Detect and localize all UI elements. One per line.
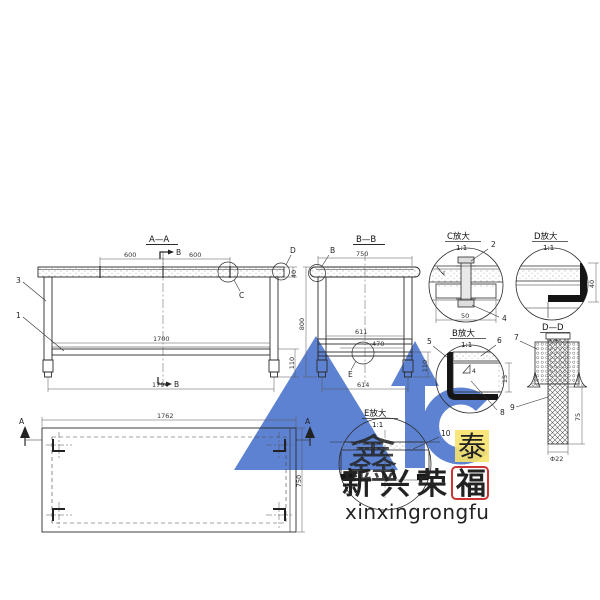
detail-d-title: D放大 xyxy=(534,231,558,242)
svg-text:B: B xyxy=(330,246,335,255)
svg-text:兴: 兴 xyxy=(380,467,410,502)
side-detail-circle-e: E xyxy=(348,342,374,379)
svg-text:40: 40 xyxy=(290,270,298,278)
section-dd: D—D 1:2 7 9 75 Φ22 xyxy=(510,323,587,463)
svg-text:1: 1 xyxy=(16,311,21,320)
svg-text:75: 75 xyxy=(574,413,582,421)
svg-text:5: 5 xyxy=(427,337,432,346)
svg-text:福: 福 xyxy=(455,467,486,502)
part-leader-1: 1 xyxy=(16,311,64,351)
weld-symbol: 4 xyxy=(463,365,476,375)
front-tabletop xyxy=(38,267,284,277)
svg-text:4: 4 xyxy=(472,368,476,375)
technical-drawing: 鑫 泰 A—A B xyxy=(0,0,600,600)
svg-text:A: A xyxy=(19,417,25,426)
svg-text:7: 7 xyxy=(514,333,519,342)
detail-d: D放大 1:1 40 xyxy=(514,231,599,320)
detail-d-circle xyxy=(516,248,588,320)
side-right-leg xyxy=(404,277,412,360)
front-shelf xyxy=(52,349,270,355)
svg-text:600: 600 xyxy=(124,251,136,259)
front-right-leg xyxy=(270,277,278,360)
svg-text:E: E xyxy=(348,370,353,379)
svg-text:荣: 荣 xyxy=(417,467,447,502)
svg-text:750: 750 xyxy=(356,250,368,258)
svg-text:611: 611 xyxy=(355,328,367,336)
svg-text:614: 614 xyxy=(357,381,369,389)
svg-text:470: 470 xyxy=(372,340,384,348)
detail-c-title: C放大 xyxy=(447,231,470,242)
watermark-text: 新 兴 荣 福 xinxingrongfu xyxy=(342,467,489,524)
svg-text:A: A xyxy=(305,417,311,426)
detail-b-title: B放大 xyxy=(452,328,475,339)
svg-text:B: B xyxy=(176,248,181,257)
svg-text:110: 110 xyxy=(288,357,296,369)
svg-text:3: 3 xyxy=(16,276,21,285)
svg-text:B: B xyxy=(174,380,179,389)
svg-text:600: 600 xyxy=(189,251,201,259)
svg-text:4: 4 xyxy=(502,314,507,323)
seal-right-char: 泰 xyxy=(458,430,486,463)
svg-text:1762: 1762 xyxy=(157,412,174,420)
svg-text:D: D xyxy=(290,246,296,255)
svg-text:新: 新 xyxy=(342,467,372,502)
svg-text:10: 10 xyxy=(441,429,451,438)
detail-d-dim: 40 xyxy=(588,263,599,302)
svg-text:C: C xyxy=(239,291,244,300)
svg-text:750: 750 xyxy=(295,475,303,487)
svg-text:40: 40 xyxy=(588,280,596,288)
brand-cn: 新 兴 荣 福 xyxy=(342,467,488,502)
svg-text:9: 9 xyxy=(510,403,515,412)
svg-text:2: 2 xyxy=(491,240,496,249)
front-view-title: A—A xyxy=(149,235,169,245)
front-view: A—A B 600 xyxy=(16,235,299,392)
svg-text:Φ22: Φ22 xyxy=(550,455,563,463)
part-leader-3: 3 xyxy=(16,276,46,301)
logo-stem-shape xyxy=(405,386,425,468)
front-feet xyxy=(43,360,279,377)
tube-cap xyxy=(546,333,570,339)
svg-text:15: 15 xyxy=(501,375,509,383)
front-left-leg xyxy=(44,277,52,360)
detail-e-title: E放大 xyxy=(364,408,387,419)
plan-section-marker-a-left: A xyxy=(19,417,42,446)
svg-text:1700: 1700 xyxy=(153,335,170,343)
section-dd-title: D—D xyxy=(542,323,564,333)
svg-text:110: 110 xyxy=(421,360,429,372)
side-view-title: B—B xyxy=(356,235,376,245)
svg-text:50: 50 xyxy=(461,312,469,320)
brand-pinyin: xinxingrongfu xyxy=(345,500,489,524)
drawing-canvas: 鑫 泰 A—A B xyxy=(0,0,600,600)
svg-text:6: 6 xyxy=(497,336,502,345)
detail-c: C放大 1:1 2 4 xyxy=(428,231,507,323)
rubber-cup xyxy=(535,342,579,384)
svg-text:8: 8 xyxy=(500,408,505,417)
svg-text:800: 800 xyxy=(298,318,306,330)
svg-text:1:1: 1:1 xyxy=(372,421,383,429)
